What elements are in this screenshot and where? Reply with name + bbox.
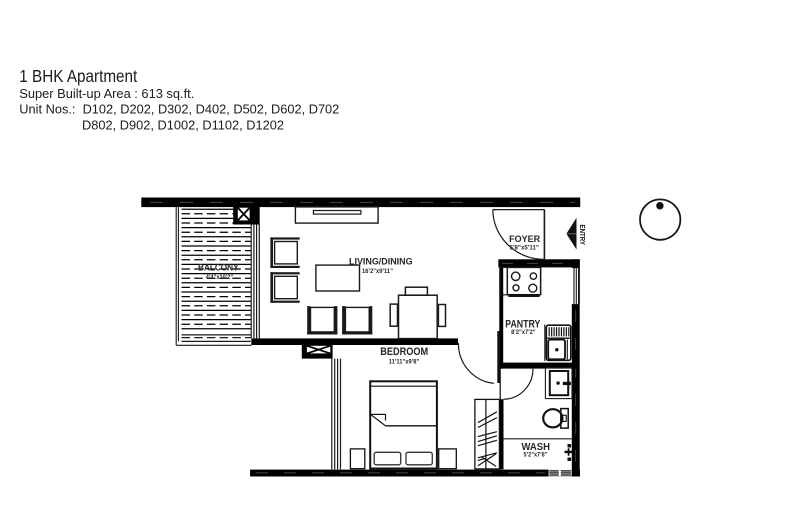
- svg-text:4’4”x10’2”: 4’4”x10’2”: [206, 274, 234, 281]
- svg-text:1 BHK Apartment: 1 BHK Apartment: [19, 66, 137, 86]
- svg-text:5’8”x5’11”: 5’8”x5’11”: [509, 244, 539, 251]
- svg-text:FOYER: FOYER: [509, 234, 540, 245]
- svg-text:Unit Nos.: D102, D202, D302,: Unit Nos.: D102, D202, D302, D402, D502,…: [19, 103, 339, 117]
- svg-text:D802, D902, D1002, D1102, D120: D802, D902, D1002, D1102, D1202: [82, 118, 284, 132]
- svg-text:8’2”x7’2”: 8’2”x7’2”: [511, 329, 536, 336]
- svg-text:ENTRY: ENTRY: [578, 225, 587, 246]
- svg-text:16’2”x9’11”: 16’2”x9’11”: [362, 268, 393, 275]
- svg-text:LIVING/DINING: LIVING/DINING: [349, 256, 413, 267]
- svg-text:11’11”x9’8”: 11’11”x9’8”: [389, 358, 420, 365]
- svg-text:BEDROOM: BEDROOM: [380, 346, 428, 358]
- svg-text:BALCONY: BALCONY: [198, 263, 239, 273]
- svg-text:Super Built-up Area : 613 sq.f: Super Built-up Area : 613 sq.ft.: [19, 87, 194, 101]
- svg-text:5’2”x7’8”: 5’2”x7’8”: [524, 452, 548, 459]
